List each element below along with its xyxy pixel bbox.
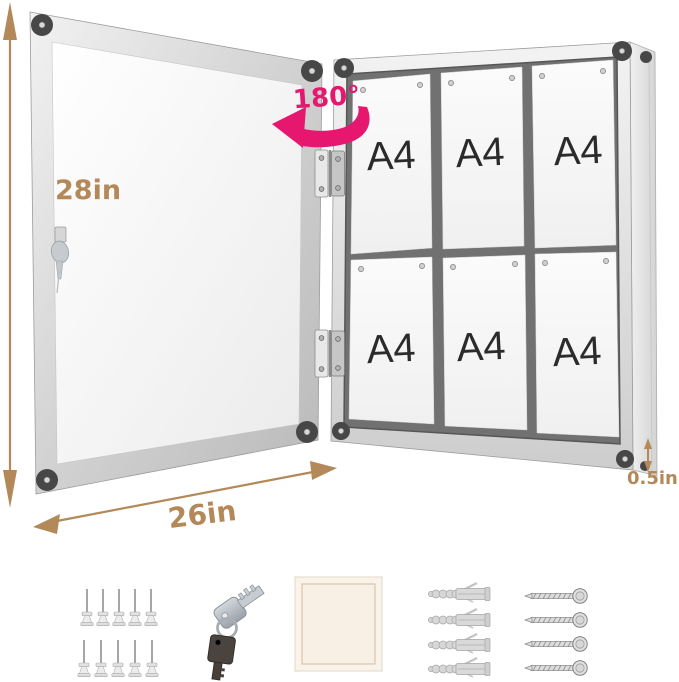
door-open [30,12,323,494]
display-panel [331,41,657,476]
wall-anchor [428,583,490,602]
wall-anchor [428,634,490,653]
wall-anchor [428,609,490,628]
paper-label-6: A4 [552,331,603,374]
notice-board-product-image: 28in 26in 0.5in 180° A4 A4 A4 A4 A4 A4 [0,0,679,682]
wall-anchors-image [428,583,490,677]
screw [525,613,587,627]
arrowhead-left-icon [33,514,60,534]
arrowhead-down-icon [3,470,17,508]
push-pin-row-1 [81,589,157,626]
paper-label-1: A4 [366,135,417,178]
hinge-bottom-icon [315,330,345,377]
paper-label-5: A4 [456,326,507,369]
width-dimension-label: 26in [167,497,238,533]
push-pin-row-2 [78,640,158,677]
height-dimension-arrow [3,2,17,508]
rotation-angle-label: 180° [292,83,361,114]
paper-label-4: A4 [366,328,417,371]
keys-image [205,581,269,681]
depth-dimension-label: 0.5in [627,470,678,488]
key-dark [205,634,236,681]
door-inner-face [52,42,302,464]
paper-label-3: A4 [553,130,604,173]
screw [525,637,587,651]
adhesive-pad-image [295,577,382,671]
paper-label-2: A4 [455,132,506,175]
push-pins-image [78,589,158,677]
arrowhead-up-icon [3,2,17,40]
panel-side-profile [630,42,657,476]
screw [525,661,587,675]
height-dimension-label: 28in [55,177,121,204]
wall-anchor [428,658,490,677]
arrowhead-right-icon [310,461,337,480]
hinge-top-icon [315,150,345,197]
screws-image [525,589,587,675]
screw [525,589,587,603]
